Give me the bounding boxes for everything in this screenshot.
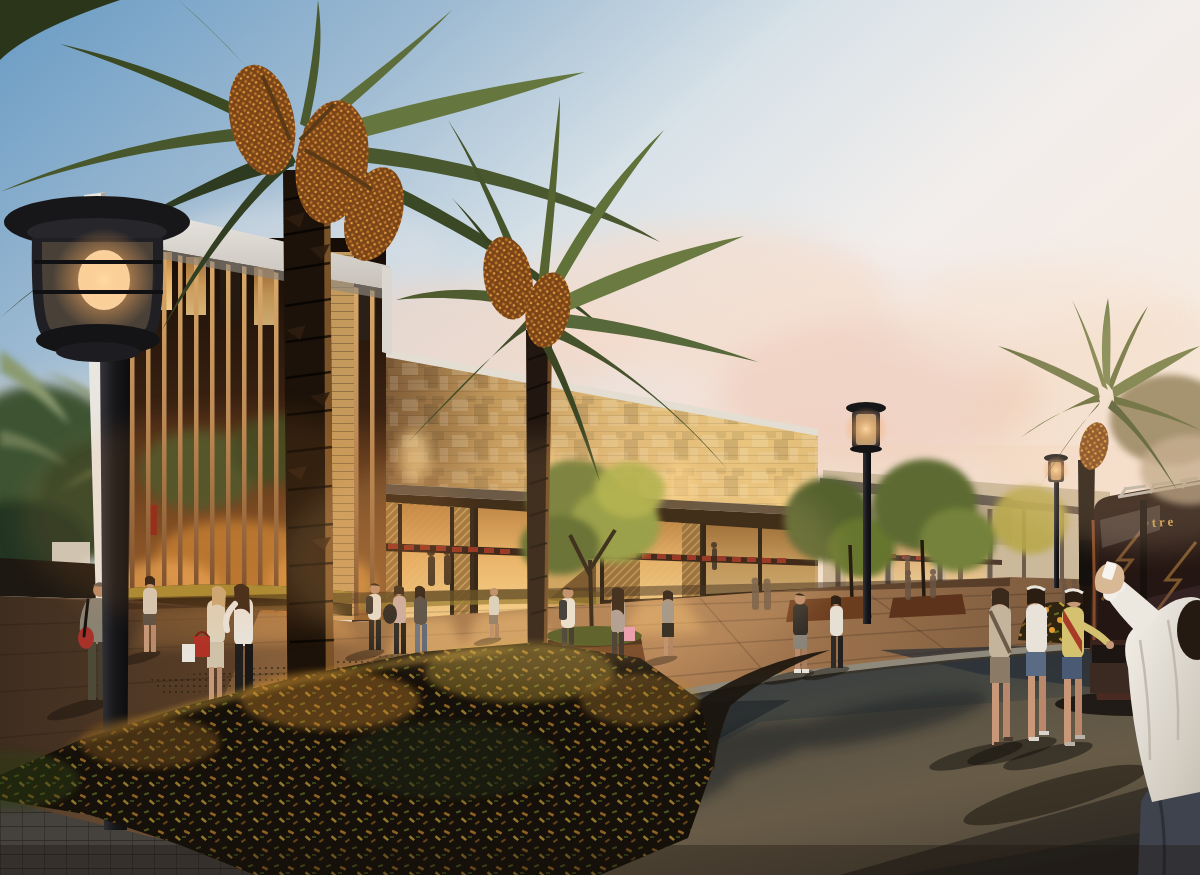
white-shopping-bag — [182, 644, 195, 662]
red-shopping-bag — [194, 636, 210, 657]
bus-mirror — [1079, 540, 1092, 586]
mall-plaza-rendering: tre — [0, 0, 1200, 875]
